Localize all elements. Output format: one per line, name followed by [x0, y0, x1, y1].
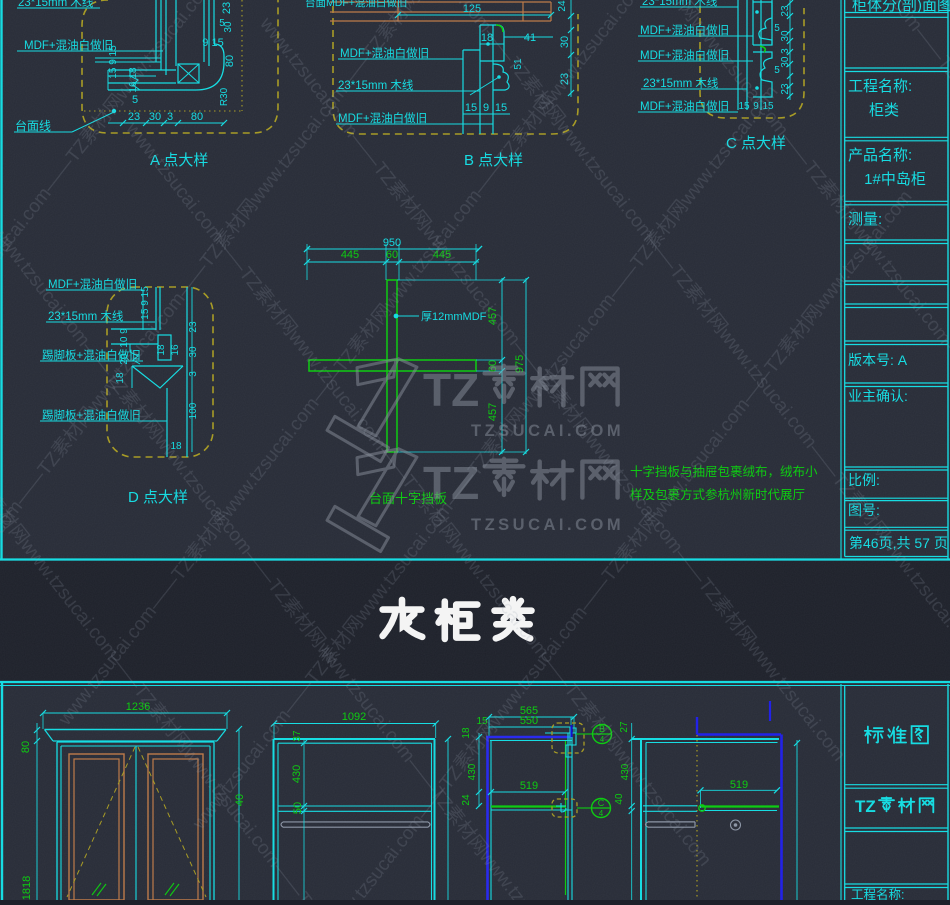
svg-text:519: 519 — [730, 779, 748, 791]
svg-text:TZ: TZ — [423, 364, 479, 416]
svg-text:业主确认:: 业主确认: — [848, 388, 908, 404]
svg-text:40: 40 — [614, 793, 625, 805]
svg-text:3: 3 — [188, 371, 199, 377]
svg-text:30: 30 — [223, 21, 234, 33]
svg-text:30: 30 — [188, 346, 199, 358]
svg-text:30 3: 30 3 — [780, 48, 791, 68]
svg-text:工程名称:: 工程名称: — [848, 78, 912, 95]
svg-text:60: 60 — [386, 249, 398, 261]
svg-text:版本号: A: 版本号: A — [848, 352, 908, 368]
svg-text:24: 24 — [557, 0, 568, 12]
svg-text:R30: R30 — [219, 87, 230, 106]
svg-text:厚12mmMDF: 厚12mmMDF — [421, 310, 487, 323]
svg-text:MDF+混油白做旧: MDF+混油白做旧 — [640, 99, 729, 113]
svg-text:4: 4 — [599, 809, 604, 818]
svg-text:80: 80 — [20, 741, 32, 753]
svg-text:23*15mm 木线: 23*15mm 木线 — [643, 76, 719, 90]
svg-text:23: 23 — [780, 5, 791, 17]
svg-text:15 9 15: 15 9 15 — [140, 286, 151, 320]
svg-text:产品名称:: 产品名称: — [848, 147, 912, 164]
svg-text:1#中岛柜: 1#中岛柜 — [864, 171, 926, 188]
svg-text:519: 519 — [520, 780, 538, 792]
svg-text:MDF+混油白做旧: MDF+混油白做旧 — [48, 277, 137, 291]
svg-text:30: 30 — [149, 111, 161, 123]
svg-text:16: 16 — [170, 344, 181, 356]
svg-text:430: 430 — [291, 765, 303, 783]
svg-text:23: 23 — [188, 321, 199, 333]
svg-text:9 15: 9 15 — [202, 37, 223, 49]
svg-text:24: 24 — [461, 794, 472, 806]
svg-text:23: 23 — [780, 83, 791, 95]
svg-text:550: 550 — [520, 715, 538, 727]
svg-text:457: 457 — [487, 403, 499, 421]
svg-text:TZ: TZ — [855, 797, 876, 816]
svg-text:15 9 15: 15 9 15 — [108, 45, 119, 79]
svg-text:台面线: 台面线 — [15, 118, 51, 133]
svg-text:80: 80 — [191, 111, 203, 123]
svg-text:15: 15 — [495, 102, 507, 114]
svg-text:D 点大样: D 点大样 — [128, 489, 188, 506]
svg-text:1818: 1818 — [21, 876, 33, 900]
svg-text:15: 15 — [465, 102, 477, 114]
svg-text:27: 27 — [619, 721, 630, 733]
svg-text:41: 41 — [524, 32, 536, 44]
svg-text:5: 5 — [774, 65, 780, 76]
svg-text:C: C — [598, 798, 605, 808]
svg-text:80: 80 — [224, 55, 236, 67]
svg-text:3: 3 — [167, 111, 173, 123]
svg-text:MDF+混油白做旧: MDF+混油白做旧 — [24, 38, 113, 52]
svg-text:100: 100 — [188, 402, 199, 419]
svg-text:445: 445 — [341, 249, 359, 261]
svg-text:18: 18 — [156, 344, 167, 356]
svg-text:十字挡板与抽屉包裹绒布，绒布小: 十字挡板与抽屉包裹绒布，绒布小 — [630, 464, 818, 479]
svg-text:950: 950 — [383, 237, 401, 249]
svg-text:30: 30 — [559, 36, 571, 48]
svg-text:工程名称:: 工程名称: — [851, 887, 904, 900]
svg-text:9: 9 — [483, 102, 489, 114]
svg-text:37: 37 — [292, 730, 303, 742]
svg-text:23: 23 — [221, 2, 233, 14]
svg-text:柜类: 柜类 — [869, 102, 899, 119]
svg-text:TZSUCAI.COM: TZSUCAI.COM — [471, 516, 624, 534]
svg-text:30: 30 — [780, 30, 791, 42]
